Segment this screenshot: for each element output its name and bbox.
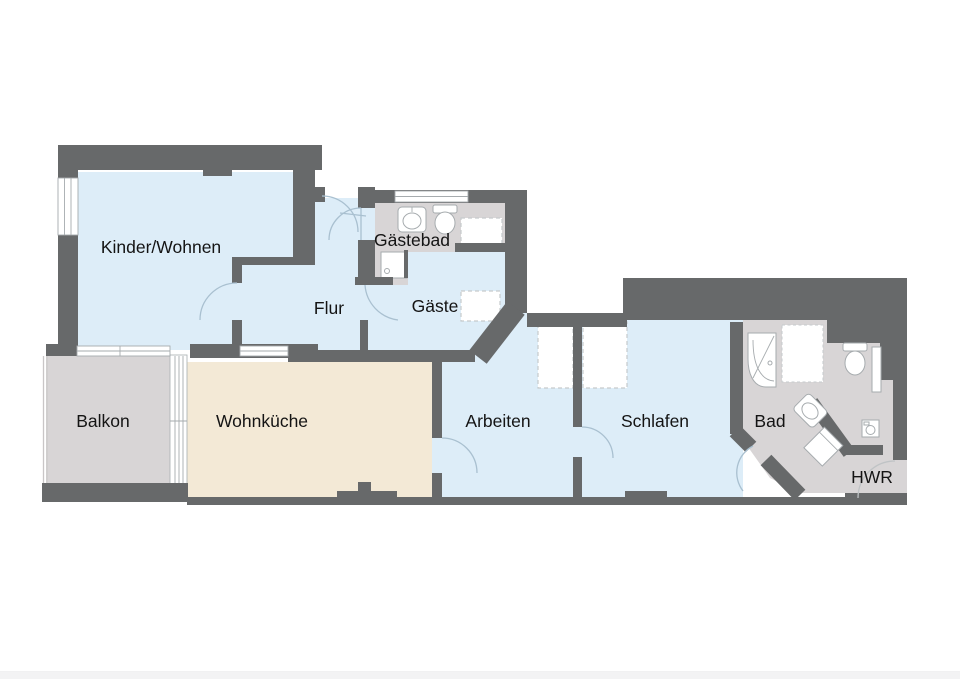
wardrobe-outline [461,291,500,321]
room-label-bad: Bad [754,411,785,431]
wall [315,187,325,202]
wall [730,322,743,434]
wall [355,277,393,285]
wall [293,202,315,265]
wardrobe-outline [538,322,573,388]
shower-enclosure-icon [782,325,823,382]
room-label-hwr: HWR [851,467,893,487]
wall [232,257,242,283]
room-label-balkon: Balkon [76,411,130,431]
wall [313,350,475,362]
room-label-kinder-wohnen: Kinder/Wohnen [101,237,221,257]
wall [505,190,527,313]
footer-strip [0,672,960,679]
wall [337,491,397,503]
wall [46,344,78,356]
wall [358,187,375,208]
wall [432,355,442,438]
bathtub-handle-icon [768,361,772,365]
wall [187,497,907,505]
wall [573,313,582,427]
shower-tray-icon [381,252,407,278]
wall [58,145,322,170]
wall [623,278,882,320]
floorplan-page: Kinder/Wohnen Flur Gästebad Gäste Balkon… [0,0,960,679]
wall [404,250,408,278]
room-label-wohnkueche: Wohnküche [216,411,308,431]
bathroom-shelf [872,347,881,392]
floorplan-canvas: Kinder/Wohnen Flur Gästebad Gäste Balkon… [0,0,960,679]
wall [237,257,301,265]
wall [358,482,371,492]
window [58,178,78,235]
wall [293,168,315,202]
wall [625,491,667,502]
toilet-cistern-icon [843,343,867,351]
washing-machine-drum-icon [866,426,875,435]
toilet-icon [845,351,865,375]
wall [880,278,907,380]
wall [827,320,883,343]
hwr-door-opening-floor [893,458,907,497]
wall [455,243,512,252]
wall [893,378,907,460]
wall [358,240,375,277]
wardrobe-outline [583,322,627,388]
sink-basin-icon [403,213,421,229]
wall [845,493,907,505]
shower-drain-icon [385,269,390,274]
wall [573,457,582,503]
wall [42,483,188,502]
wall [203,170,232,176]
room-label-gaeste: Gäste [412,296,459,316]
room-label-arbeiten: Arbeiten [465,411,530,431]
room-label-gaestebad: Gästebad [374,230,450,250]
room-label-schlafen: Schlafen [621,411,689,431]
wall [360,320,368,354]
washing-machine-panel-icon [864,422,869,425]
room-label-flur: Flur [314,298,344,318]
wall [843,445,883,455]
